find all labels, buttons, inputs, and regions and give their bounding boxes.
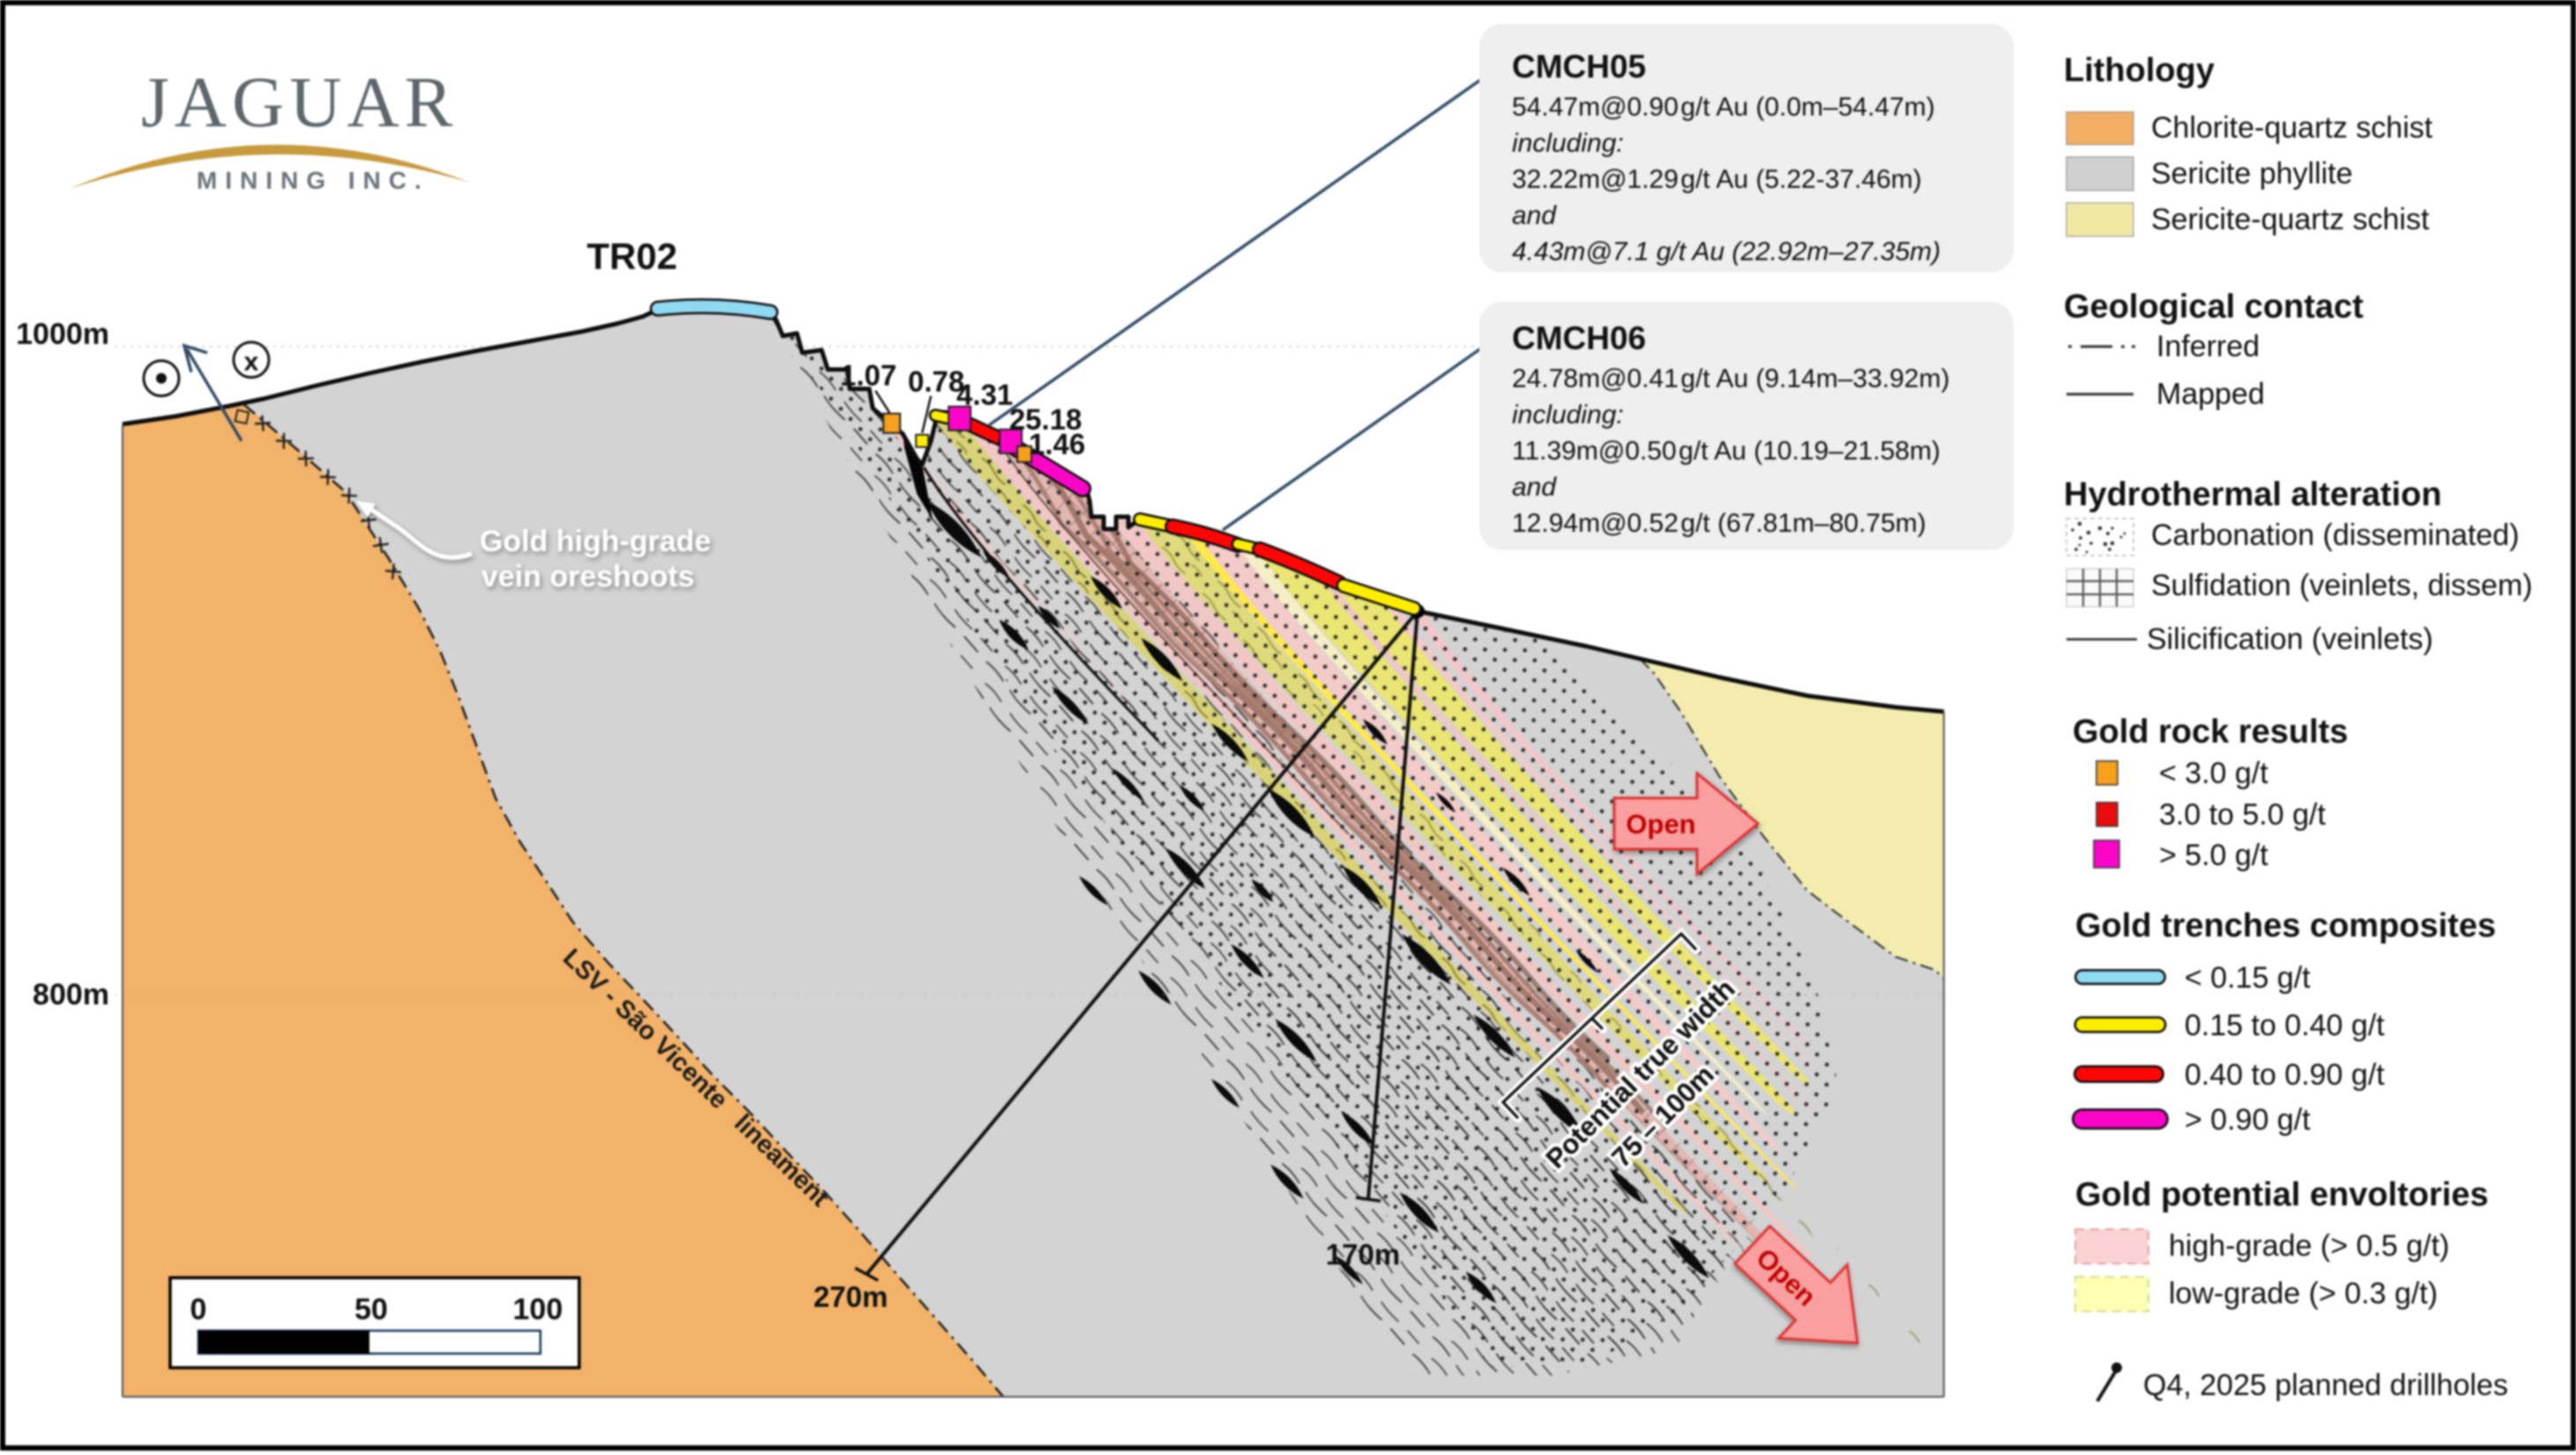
svg-text:1.46: 1.46	[1029, 428, 1085, 460]
svg-text:1.07: 1.07	[840, 359, 897, 392]
svg-text:100: 100	[513, 1293, 563, 1326]
svg-text:< 3.0 g/t: < 3.0 g/t	[2159, 757, 2268, 790]
svg-text:Sulfidation (veinlets, dissem): Sulfidation (veinlets, dissem)	[2151, 569, 2533, 602]
svg-text:low-grade (> 0.3 g/t): low-grade (> 0.3 g/t)	[2169, 1277, 2438, 1310]
svg-text:24.78m@0.41 g/t Au (9.14m–33.9: 24.78m@0.41 g/t Au (9.14m–33.92m)	[1512, 364, 1950, 393]
svg-text:high-grade (> 0.5 g/t): high-grade (> 0.5 g/t)	[2169, 1229, 2449, 1263]
svg-text:Gold trenches composites: Gold trenches composites	[2075, 907, 2496, 944]
svg-text:and: and	[1512, 473, 1557, 502]
svg-text:3.0 to 5.0 g/t: 3.0 to 5.0 g/t	[2159, 798, 2327, 832]
svg-text:Sericite phyllite: Sericite phyllite	[2151, 157, 2353, 190]
svg-text:> 0.90 g/t: > 0.90 g/t	[2185, 1103, 2311, 1137]
svg-text:including:: including:	[1512, 400, 1624, 429]
svg-text:54.47m@0.90 g/t Au (0.0m–54.47: 54.47m@0.90 g/t Au (0.0m–54.47m)	[1512, 93, 1935, 122]
svg-text:< 0.15 g/t: < 0.15 g/t	[2185, 961, 2311, 995]
svg-text:> 5.0 g/t: > 5.0 g/t	[2159, 839, 2268, 872]
svg-text:including:: including:	[1512, 129, 1624, 158]
svg-text:1000m: 1000m	[16, 317, 109, 351]
svg-text:Q4, 2025 planned drillholes: Q4, 2025 planned drillholes	[2143, 1369, 2508, 1402]
svg-text:0: 0	[190, 1293, 207, 1326]
svg-text:170m: 170m	[1326, 1238, 1400, 1271]
svg-text:Silicification (veinlets): Silicification (veinlets)	[2147, 623, 2433, 656]
svg-text:11.39m@0.50 g/t Au (10.19–21.5: 11.39m@0.50 g/t Au (10.19–21.58m)	[1512, 436, 1940, 466]
svg-text:Mapped: Mapped	[2156, 377, 2265, 411]
svg-text:and: and	[1512, 201, 1557, 230]
svg-text:800m: 800m	[33, 978, 109, 1011]
svg-text:MINING INC.: MINING INC.	[197, 167, 429, 194]
svg-text:32.22m@1.29 g/t Au (5.22-37.46: 32.22m@1.29 g/t Au (5.22-37.46m)	[1512, 165, 1922, 194]
svg-text:12.94m@0.52 g/t (67.81m–80.75m: 12.94m@0.52 g/t (67.81m–80.75m)	[1512, 509, 1926, 538]
svg-text:Chlorite-quartz schist: Chlorite-quartz schist	[2151, 111, 2433, 145]
svg-text:CMCH06: CMCH06	[1512, 320, 1646, 356]
svg-text:CMCH05: CMCH05	[1512, 48, 1646, 85]
svg-text:4.31: 4.31	[957, 378, 1013, 411]
svg-text:Lithology: Lithology	[2064, 52, 2215, 89]
svg-text:270m: 270m	[814, 1280, 888, 1313]
svg-text:Sericite-quartz schist: Sericite-quartz schist	[2151, 203, 2430, 236]
svg-text:Carbonation (disseminated): Carbonation (disseminated)	[2151, 519, 2520, 552]
svg-text:Gold potential envoltories: Gold potential envoltories	[2075, 1176, 2489, 1213]
svg-text:0.40 to 0.90 g/t: 0.40 to 0.90 g/t	[2185, 1058, 2385, 1092]
svg-text:Open: Open	[1626, 809, 1695, 839]
svg-text:TR02: TR02	[587, 235, 678, 277]
svg-text:x: x	[244, 347, 259, 377]
svg-text:JAGUAR: JAGUAR	[141, 62, 458, 142]
svg-text:4.43m@7.1 g/t Au (22.92m–27.35: 4.43m@7.1 g/t Au (22.92m–27.35m)	[1512, 237, 1940, 266]
svg-text:Gold high-grade: Gold high-grade	[480, 525, 711, 558]
svg-text:50: 50	[354, 1293, 388, 1326]
svg-text:Gold rock results: Gold rock results	[2073, 713, 2349, 750]
svg-text:vein oreshoots: vein oreshoots	[481, 560, 695, 593]
svg-text:Geological contact: Geological contact	[2064, 288, 2364, 325]
svg-text:0.15 to 0.40 g/t: 0.15 to 0.40 g/t	[2185, 1009, 2385, 1042]
svg-text:Inferred: Inferred	[2156, 330, 2260, 363]
svg-text:Hydrothermal alteration: Hydrothermal alteration	[2064, 476, 2442, 513]
